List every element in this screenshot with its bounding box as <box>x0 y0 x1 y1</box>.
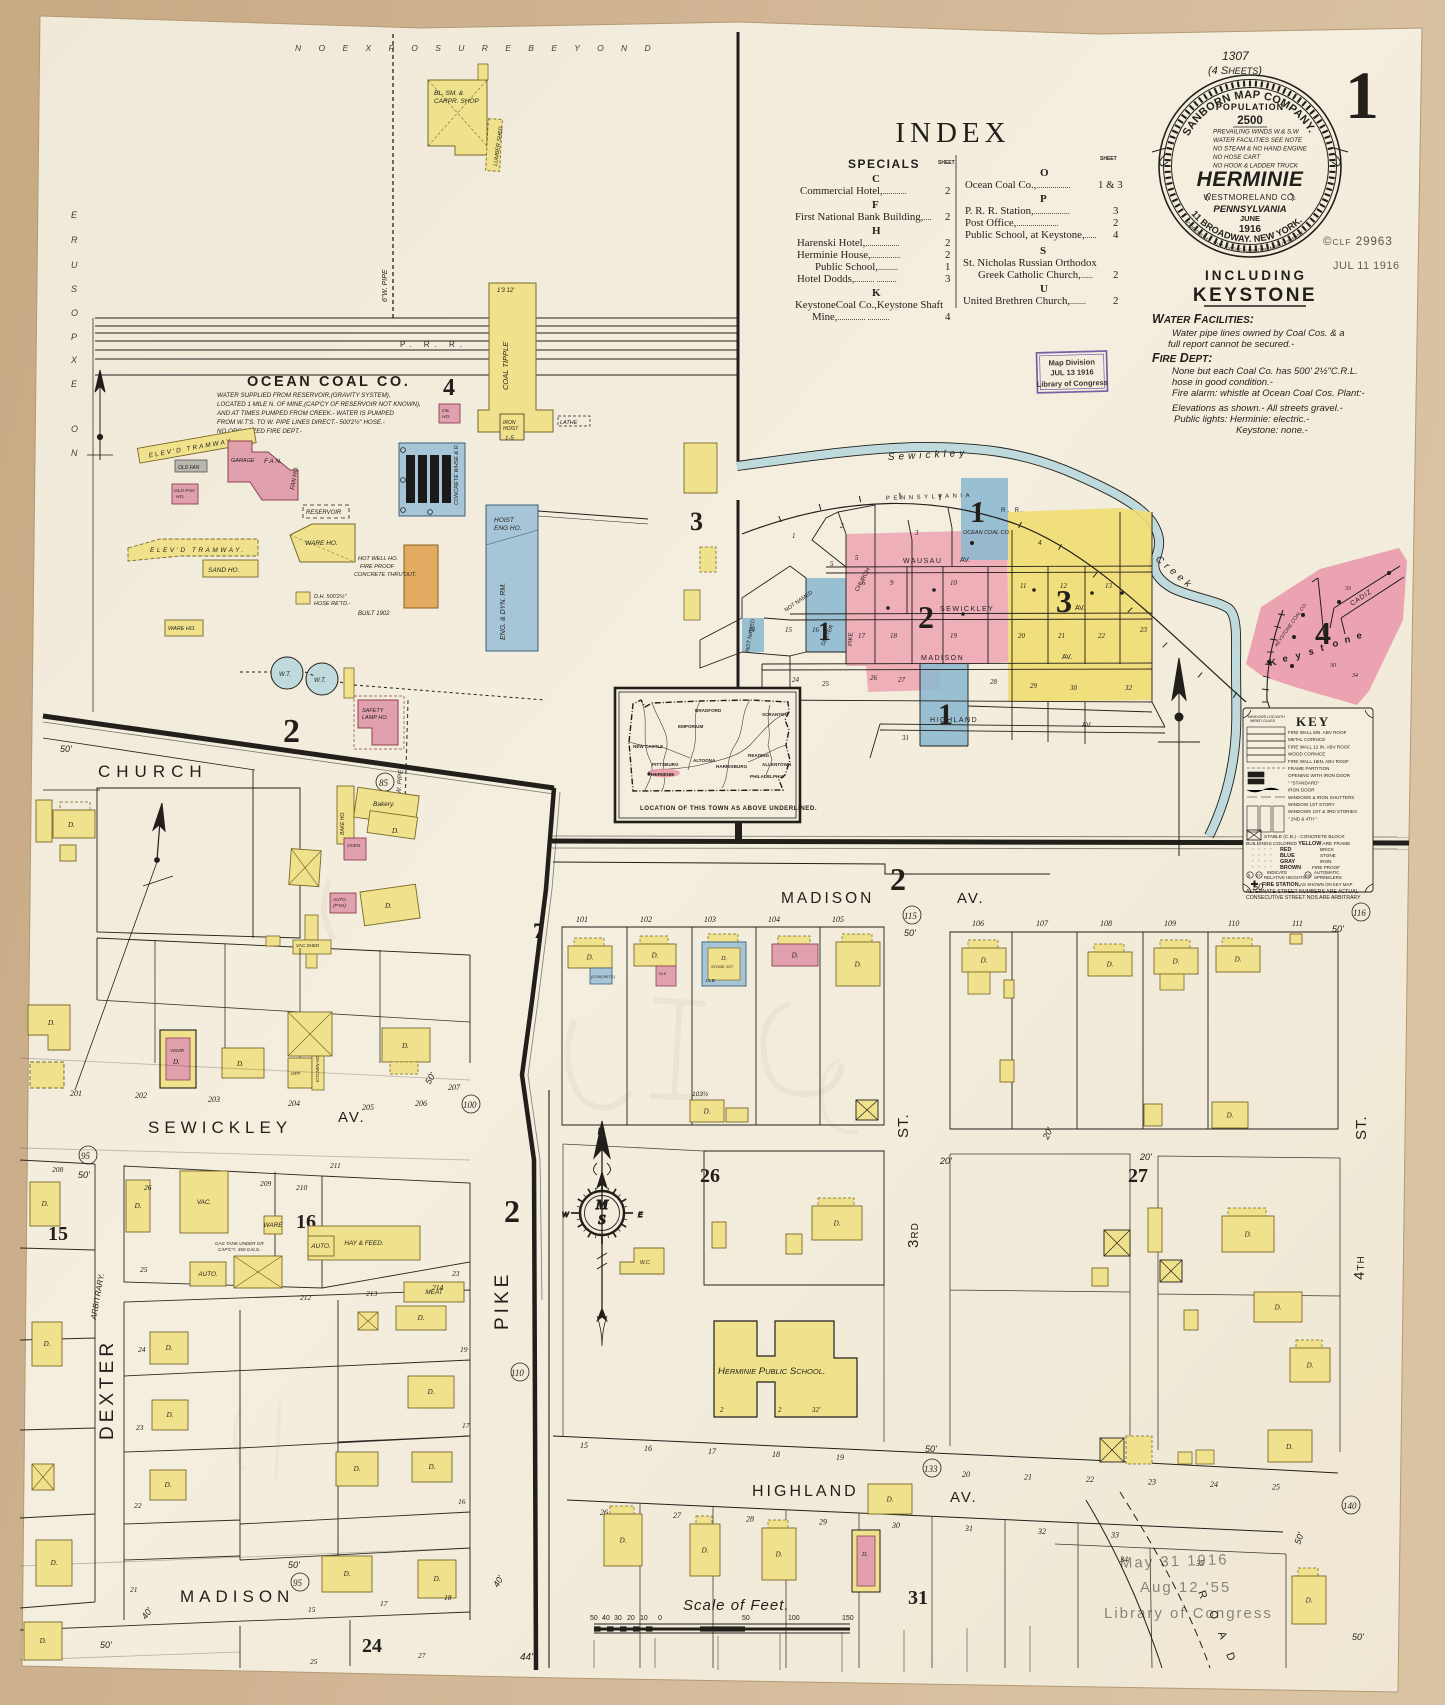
svg-text:HERMINIE PUBLIC SCHOOL.: HERMINIE PUBLIC SCHOOL. <box>718 1366 826 1377</box>
svg-text:WOOD CORNICE: WOOD CORNICE <box>1288 752 1325 757</box>
svg-text:READING: READING <box>748 753 770 758</box>
svg-text:13: 13 <box>1105 582 1113 590</box>
svg-text:25: 25 <box>140 1265 148 1274</box>
svg-text:15: 15 <box>580 1441 588 1450</box>
svg-text:D.: D. <box>236 1060 244 1068</box>
svg-text:INCLUDING: INCLUDING <box>1205 268 1307 283</box>
svg-text:OCEAN COAL CO.: OCEAN COAL CO. <box>963 530 1010 536</box>
svg-text:10: 10 <box>640 1615 648 1622</box>
svg-text:WATER SUPPLIED FROM RESERVOIR,: WATER SUPPLIED FROM RESERVOIR,(GRAVITY S… <box>217 392 391 399</box>
svg-text:RESERVOIR: RESERVOIR <box>306 510 342 516</box>
svg-text:D.: D. <box>980 957 988 965</box>
svg-text:133: 133 <box>924 1464 938 1474</box>
svg-text:16: 16 <box>812 626 820 634</box>
svg-text:100: 100 <box>788 1615 800 1622</box>
svg-text:4: 4 <box>1113 229 1119 241</box>
svg-text:POPULATION: POPULATION <box>1216 102 1284 112</box>
svg-text:C: C <box>872 173 880 185</box>
svg-text:WINDOW 1ST STORY: WINDOW 1ST STORY <box>1288 802 1335 807</box>
svg-text:D.: D. <box>41 1200 49 1208</box>
svg-text:Post Office,..................: Post Office,..................... <box>965 217 1058 229</box>
svg-text:VAC.: VAC. <box>197 1199 212 1206</box>
svg-text:H: H <box>872 225 881 237</box>
svg-text:HOIST: HOIST <box>494 517 515 524</box>
svg-text:110: 110 <box>511 1368 524 1378</box>
svg-text:24: 24 <box>1210 1480 1218 1489</box>
svg-text:109: 109 <box>1164 919 1176 928</box>
svg-text:N: N <box>598 1127 604 1136</box>
svg-text:Aug 12 '55: Aug 12 '55 <box>1140 1579 1231 1596</box>
svg-text:PIKE: PIKE <box>848 632 854 646</box>
svg-text:P. R. R.: P. R. R. <box>400 340 467 349</box>
svg-text:4: 4 <box>1038 539 1042 547</box>
svg-text:AV.: AV. <box>960 557 970 564</box>
svg-text:AUTO.: AUTO. <box>197 1271 217 1278</box>
svg-text:101: 101 <box>576 915 588 924</box>
svg-text:NEW CASTLE: NEW CASTLE <box>633 744 663 749</box>
svg-text:21: 21 <box>1024 1473 1032 1482</box>
svg-text:27: 27 <box>418 1651 426 1660</box>
svg-text:201: 201 <box>70 1089 82 1098</box>
svg-text:1: 1 <box>945 261 950 273</box>
svg-text:S: S <box>1040 245 1046 257</box>
svg-text:16: 16 <box>644 1444 652 1453</box>
svg-text:50': 50' <box>1352 1632 1364 1642</box>
svg-text:Keystone: none.-: Keystone: none.- <box>1236 425 1308 436</box>
svg-text:30: 30 <box>1069 684 1078 692</box>
svg-text:" "STANDARD": " "STANDARD" <box>1288 780 1319 785</box>
svg-text:14: 14 <box>748 626 756 634</box>
svg-text:PITTSBURG: PITTSBURG <box>652 762 679 767</box>
svg-text:WATER FACILITIES:: WATER FACILITIES: <box>1152 312 1254 326</box>
svg-text:D.: D. <box>165 1344 173 1352</box>
svg-text:Library of Congress: Library of Congress <box>1037 378 1108 389</box>
svg-text:23: 23 <box>452 1269 460 1278</box>
svg-text:100: 100 <box>463 1100 477 1110</box>
svg-text:D.: D. <box>586 954 594 962</box>
svg-text:D.: D. <box>43 1340 51 1348</box>
svg-text:10: 10 <box>950 579 958 587</box>
svg-text:full report cannot be secured.: full report cannot be secured.- <box>1168 339 1294 350</box>
svg-text:United Brethren Church,.......: United Brethren Church,........ <box>963 295 1086 307</box>
svg-text:34: 34 <box>1351 672 1358 679</box>
svg-text:D.: D. <box>833 1220 841 1228</box>
svg-text:7: 7 <box>533 918 544 943</box>
svg-text:2500: 2500 <box>1237 115 1263 127</box>
svg-text:CONCRETE WHSE & R.: CONCRETE WHSE & R. <box>454 444 460 505</box>
svg-text:PREVAILING WINDS W.& S.W: PREVAILING WINDS W.& S.W <box>1213 129 1300 136</box>
svg-text:ELEV'D TRAMWAY.: ELEV'D TRAMWAY. <box>150 547 246 554</box>
svg-text:GAS TANK UNDER GR.: GAS TANK UNDER GR. <box>215 1241 265 1246</box>
svg-text:STONE 1ST: STONE 1ST <box>711 964 734 969</box>
svg-text:2: 2 <box>890 861 906 897</box>
svg-text:©CLF 29963: ©CLF 29963 <box>1323 236 1393 248</box>
svg-text:D.: D. <box>1172 958 1180 966</box>
svg-text:LOCATED 1 MILE N. OF MINE,(CAP: LOCATED 1 MILE N. OF MINE,(CAP'CY OF RES… <box>217 401 421 408</box>
svg-text:2: 2 <box>945 237 950 249</box>
svg-text:K: K <box>872 287 881 299</box>
svg-text:28: 28 <box>746 1514 754 1523</box>
svg-text:GARAGE: GARAGE <box>231 458 255 464</box>
svg-text:20: 20 <box>962 1470 970 1479</box>
svg-text:CARPR. SHOP: CARPR. SHOP <box>434 98 479 105</box>
svg-text:1: 1 <box>1345 57 1379 133</box>
svg-text:WAUSAU: WAUSAU <box>903 558 942 565</box>
svg-text:F A N.: F A N. <box>264 458 282 465</box>
svg-text:ST.: ST. <box>895 1113 912 1138</box>
svg-text:CONSECUTIVE STREET NOS ARE ARB: CONSECUTIVE STREET NOS ARE ARBITRARY <box>1246 895 1361 901</box>
svg-text:Water pipe lines owned by Coal: Water pipe lines owned by Coal Cos. & a <box>1172 328 1345 339</box>
svg-text:Public lights: Herminie: elect: Public lights: Herminie: electric.- <box>1174 414 1309 425</box>
svg-text:44': 44' <box>520 1652 534 1663</box>
svg-text:ALLENTOWN: ALLENTOWN <box>762 762 792 767</box>
svg-text:ENG HO.: ENG HO. <box>494 525 522 532</box>
svg-text:25: 25 <box>1272 1483 1280 1492</box>
svg-text:E: E <box>71 210 78 220</box>
svg-text:AS: AS <box>1305 873 1311 878</box>
svg-text:MADISON: MADISON <box>781 890 874 907</box>
svg-text:HERMINIE: HERMINIE <box>651 772 675 778</box>
svg-text:P: P <box>1040 193 1047 205</box>
svg-text:18: 18 <box>444 1593 452 1602</box>
svg-text:2: 2 <box>778 1406 782 1414</box>
svg-text:3: 3 <box>914 529 919 537</box>
svg-text:17: 17 <box>462 1421 470 1430</box>
svg-text:FIRE WALL 12 IN. ABV ROOF: FIRE WALL 12 IN. ABV ROOF <box>1288 744 1350 749</box>
svg-text:212: 212 <box>300 1293 312 1302</box>
svg-text:30: 30 <box>1329 663 1336 669</box>
svg-text:50': 50' <box>78 1170 90 1180</box>
svg-text:110: 110 <box>1228 919 1239 928</box>
svg-text:85: 85 <box>379 778 389 788</box>
svg-text:Elevations as shown.- All stre: Elevations as shown.- All streets gravel… <box>1172 403 1343 414</box>
svg-text:STONE: STONE <box>1320 853 1336 858</box>
svg-text:D.: D. <box>1234 956 1242 964</box>
svg-text:1S.B.: 1S.B. <box>705 978 716 983</box>
svg-text:22: 22 <box>1098 632 1106 640</box>
svg-text:204: 204 <box>288 1099 300 1108</box>
svg-text:95: 95 <box>293 1578 303 1588</box>
svg-text:OLD FAN: OLD FAN <box>174 488 195 494</box>
svg-text:WESTMORELAND CO.: WESTMORELAND CO. <box>1204 193 1297 202</box>
svg-text:1: 1 <box>792 532 796 540</box>
svg-text:40: 40 <box>602 1615 610 1622</box>
svg-text:1: 1 <box>970 496 985 529</box>
svg-text:1307: 1307 <box>1222 49 1250 63</box>
svg-text:50': 50' <box>60 744 72 754</box>
svg-text:Harenski Hotel,...............: Harenski Hotel,................. <box>797 237 899 249</box>
svg-text:26: 26 <box>144 1183 152 1192</box>
svg-text:19: 19 <box>460 1345 468 1354</box>
svg-text:JUL 11 1916: JUL 11 1916 <box>1333 260 1400 272</box>
svg-text:9: 9 <box>890 579 894 587</box>
svg-text:24: 24 <box>362 1635 382 1657</box>
svg-text:BL. SM. &: BL. SM. & <box>434 90 463 97</box>
svg-text:TILE: TILE <box>658 971 667 976</box>
svg-text:SPRINKLERS: SPRINKLERS <box>1314 875 1342 880</box>
svg-text:WINDOWS 1ST & 3RD STORIES: WINDOWS 1ST & 3RD STORIES <box>1288 809 1357 814</box>
svg-text:28: 28 <box>990 678 998 686</box>
svg-text:209: 209 <box>260 1179 272 1188</box>
svg-text:HOIST: HOIST <box>503 426 519 432</box>
svg-text:IRON: IRON <box>1320 859 1331 864</box>
svg-text:24: 24 <box>792 676 800 684</box>
svg-text:206: 206 <box>415 1099 427 1108</box>
svg-text:SAND HO.: SAND HO. <box>208 567 240 574</box>
svg-text:NO HOSE CART: NO HOSE CART <box>1213 154 1261 161</box>
svg-text:METAL CORNICE: METAL CORNICE <box>1288 737 1325 742</box>
svg-text:1: 1 <box>818 617 831 646</box>
svg-text:211: 211 <box>330 1161 341 1170</box>
svg-text:17: 17 <box>858 632 866 640</box>
svg-text:Scale of Feet.: Scale of Feet. <box>683 1597 790 1614</box>
svg-text:SCRANTON: SCRANTON <box>762 712 789 717</box>
svg-text:25: 25 <box>310 1657 318 1666</box>
svg-text:D.: D. <box>166 1411 174 1419</box>
svg-text:HAY & FEED.: HAY & FEED. <box>344 1240 383 1247</box>
svg-text:RELATIVE HEIGHTS: RELATIVE HEIGHTS <box>1264 875 1306 880</box>
svg-text:32: 32 <box>1037 1527 1046 1536</box>
svg-text:6"W. PIPE: 6"W. PIPE <box>382 269 389 302</box>
svg-text:50: 50 <box>1253 882 1263 892</box>
svg-text:AV.: AV. <box>1075 605 1085 612</box>
svg-text:hose in good condition.-: hose in good condition.- <box>1172 377 1273 388</box>
svg-text:KEYSTONE: KEYSTONE <box>1193 285 1317 306</box>
svg-text:KeystoneCoal Co.,Keystone Shaf: KeystoneCoal Co.,Keystone Shaft <box>795 299 943 311</box>
svg-text:N O E X P O S U R E B E Y: N O E X P O S U R E B E Y O N D <box>295 43 658 53</box>
svg-text:R: R <box>71 235 78 245</box>
svg-text:BRICK: BRICK <box>1320 847 1335 852</box>
svg-text:150: 150 <box>842 1615 854 1622</box>
svg-text:MADISON: MADISON <box>921 655 964 662</box>
svg-text:22: 22 <box>134 1501 142 1510</box>
svg-text:(4 SHEETS): (4 SHEETS) <box>1208 65 1262 77</box>
svg-text:AV.: AV. <box>957 890 985 907</box>
svg-text:24: 24 <box>138 1345 146 1354</box>
svg-text:W.C.: W.C. <box>640 1260 651 1266</box>
svg-text:LATHE: LATHE <box>560 420 578 426</box>
svg-text:D.: D. <box>703 1108 711 1116</box>
svg-text:SPECIALS: SPECIALS <box>848 157 920 171</box>
svg-text:SHEET: SHEET <box>1100 156 1117 162</box>
svg-text:D.: D. <box>775 1551 783 1559</box>
svg-text:HARRISBURG: HARRISBURG <box>716 764 748 769</box>
svg-text:4: 4 <box>945 311 951 323</box>
svg-text:2: 2 <box>945 211 950 223</box>
svg-text:2: 2 <box>1113 269 1118 281</box>
svg-text:106: 106 <box>972 919 984 928</box>
svg-text:31: 31 <box>901 734 909 742</box>
svg-text:O: O <box>71 424 78 434</box>
svg-text:2: 2 <box>504 1193 520 1229</box>
svg-text:27: 27 <box>1256 873 1261 878</box>
svg-text:5: 5 <box>830 560 834 568</box>
svg-text:Bakery.: Bakery. <box>373 801 395 808</box>
svg-text:3: 3 <box>1113 205 1118 217</box>
svg-text:18: 18 <box>890 632 898 640</box>
svg-text:COAL TIPPLE: COAL TIPPLE <box>501 341 510 390</box>
svg-text:IRON DOOR: IRON DOOR <box>1288 788 1315 793</box>
svg-text:0: 0 <box>658 1615 662 1622</box>
svg-text:5: 5 <box>855 554 859 562</box>
svg-text:" 2ND & 4TH ": " 2ND & 4TH " <box>1288 816 1318 821</box>
svg-text:27: 27 <box>673 1511 682 1520</box>
svg-text:D.: D. <box>67 821 75 829</box>
svg-text:D.: D. <box>428 1463 436 1471</box>
svg-text:N: N <box>71 448 78 458</box>
svg-text:St. Nicholas Russian Orthodox: St. Nicholas Russian Orthodox <box>963 257 1097 269</box>
svg-text:FIRE PROOF: FIRE PROOF <box>360 564 395 570</box>
svg-text:HOSE RE'TD.-: HOSE RE'TD.- <box>314 601 351 607</box>
svg-text:E: E <box>71 379 78 389</box>
svg-text:Commercial Hotel,............: Commercial Hotel,............ <box>800 185 907 197</box>
svg-text:FROM W.T'S. TO W. PIPE LINES D: FROM W.T'S. TO W. PIPE LINES DIRECT.- 50… <box>217 419 385 426</box>
svg-text:D.: D. <box>391 827 399 835</box>
svg-text:3: 3 <box>690 507 703 536</box>
svg-text:23: 23 <box>1140 626 1148 634</box>
svg-text:OPENING WITH IRON DOOR: OPENING WITH IRON DOOR <box>1288 773 1351 778</box>
svg-text:31: 31 <box>908 1587 928 1609</box>
svg-text:214: 214 <box>432 1283 444 1292</box>
svg-text:OLD FAN: OLD FAN <box>178 465 200 471</box>
svg-text:32': 32' <box>811 1406 821 1414</box>
svg-text:6: 6 <box>862 579 866 587</box>
svg-text:102: 102 <box>640 915 652 924</box>
svg-text:Fire alarm: whistle at Ocean C: Fire alarm: whistle at Ocean Coal Cos. P… <box>1172 388 1365 399</box>
svg-text:LAMP HO.: LAMP HO. <box>362 715 388 721</box>
svg-text:KITCHEN HO.: KITCHEN HO. <box>315 1055 320 1082</box>
svg-text:S: S <box>71 284 77 294</box>
svg-text:D.: D. <box>854 961 862 969</box>
svg-text:21: 21 <box>130 1585 138 1594</box>
svg-text:2: 2 <box>945 249 950 261</box>
svg-text:WIRED GLASS: WIRED GLASS <box>1250 719 1276 723</box>
svg-text:CAP'C'Y. 350 GALS.-: CAP'C'Y. 350 GALS.- <box>218 1247 262 1252</box>
svg-text:W.T.: W.T. <box>314 678 326 684</box>
svg-text:2: 2 <box>283 713 300 750</box>
svg-text:D.: D. <box>164 1481 172 1489</box>
svg-text:KEY: KEY <box>1296 714 1330 729</box>
svg-text:208: 208 <box>52 1165 64 1174</box>
svg-text:X: X <box>70 355 78 365</box>
svg-text:AV.: AV. <box>1082 722 1092 729</box>
svg-text:AS SHOWN ON KEY MAP: AS SHOWN ON KEY MAP <box>1300 882 1352 887</box>
svg-text:116: 116 <box>1353 908 1366 918</box>
svg-text:AV.: AV. <box>1062 654 1072 661</box>
svg-text:D.: D. <box>701 1547 709 1555</box>
svg-text:105: 105 <box>832 915 844 924</box>
svg-text:107: 107 <box>1036 919 1049 928</box>
svg-text:Greek Catholic Church,......: Greek Catholic Church,...... <box>978 269 1093 281</box>
svg-text:O: O <box>1040 167 1049 179</box>
svg-text:Herminie House,...............: Herminie House,............... <box>797 249 901 261</box>
svg-text:213: 213 <box>366 1289 378 1298</box>
svg-text:WATER FACILITIES SEE NOTE: WATER FACILITIES SEE NOTE <box>1213 137 1303 144</box>
svg-text:1916: 1916 <box>1239 224 1262 235</box>
svg-text:2: 2 <box>1113 217 1118 229</box>
svg-text:111: 111 <box>1292 919 1303 928</box>
svg-text:D.: D. <box>134 1202 142 1210</box>
svg-text:E: E <box>638 1212 643 1219</box>
svg-text:OVEN: OVEN <box>347 843 361 848</box>
svg-text:BUILT 1902: BUILT 1902 <box>358 611 390 617</box>
svg-text:Hotel Dodds,.......... .......: Hotel Dodds,.......... .......... <box>797 273 897 285</box>
svg-text:R. R.: R. R. <box>1001 508 1025 514</box>
svg-text:F: F <box>872 199 879 211</box>
svg-text:AND AT TIMES PUMPED FROM CREEK: AND AT TIMES PUMPED FROM CREEK.- WATER I… <box>216 410 394 417</box>
svg-text:31: 31 <box>964 1524 973 1533</box>
svg-text:(P'VA): (P'VA) <box>333 903 346 908</box>
svg-text:Mine,.............. ..........: Mine,.............. ........... <box>812 311 890 323</box>
svg-text:115: 115 <box>904 911 917 921</box>
svg-text:95: 95 <box>81 1151 91 1161</box>
svg-text:P. R. R. Station,.............: P. R. R. Station,.................. <box>965 205 1070 217</box>
svg-text:W.T.: W.T. <box>279 672 291 678</box>
svg-text:WINDOWS & IRON SHUTTERS: WINDOWS & IRON SHUTTERS <box>1288 795 1354 800</box>
svg-text:50': 50' <box>100 1640 112 1650</box>
svg-text:103: 103 <box>704 915 716 924</box>
svg-text:207: 207 <box>448 1083 461 1092</box>
svg-text:50: 50 <box>590 1615 598 1622</box>
svg-text:Public School,..........: Public School,.......... <box>815 261 898 273</box>
svg-text:15: 15 <box>785 626 793 634</box>
svg-text:D.: D. <box>50 1559 58 1567</box>
svg-text:HOT WELL HO.: HOT WELL HO. <box>358 556 398 562</box>
svg-text:JUL 13 1916: JUL 13 1916 <box>1050 367 1093 377</box>
svg-text:29: 29 <box>819 1518 827 1527</box>
svg-text:D.: D. <box>791 952 799 960</box>
svg-text:33: 33 <box>1344 586 1351 592</box>
svg-text:32: 32 <box>1124 684 1133 692</box>
svg-text:50': 50' <box>904 928 916 938</box>
svg-text:15: 15 <box>308 1605 316 1614</box>
svg-text:202: 202 <box>135 1091 147 1100</box>
svg-text:INDEX: INDEX <box>895 117 1010 149</box>
svg-text:D.: D. <box>720 956 727 962</box>
svg-text:D.: D. <box>861 1552 868 1558</box>
svg-text:HO.: HO. <box>176 494 185 500</box>
svg-text:AV.: AV. <box>950 1489 978 1506</box>
svg-text:23: 23 <box>136 1423 144 1432</box>
svg-text:2: 2 <box>918 599 934 635</box>
svg-text:M: M <box>595 1198 609 1213</box>
svg-text:33: 33 <box>1110 1530 1119 1539</box>
svg-text:30: 30 <box>891 1521 900 1530</box>
svg-text:D.: D. <box>353 1465 361 1473</box>
svg-text:STABLE (C.B.) - CONCRETE BLO: STABLE (C.B.) - CONCRETE BLOCK <box>1264 834 1345 840</box>
svg-text:D.: D. <box>1226 1112 1234 1120</box>
svg-text:D.: D. <box>1244 1231 1252 1239</box>
svg-text:50': 50' <box>288 1560 300 1570</box>
svg-text:D.: D. <box>47 1019 55 1027</box>
svg-text:11: 11 <box>1020 582 1026 590</box>
svg-text:203: 203 <box>208 1095 220 1104</box>
svg-text:50: 50 <box>742 1615 750 1622</box>
svg-text:First National Bank Building,.: First National Bank Building,.... <box>795 211 931 223</box>
svg-text:D.: D. <box>401 1042 409 1050</box>
svg-text:1-5: 1-5 <box>505 436 514 442</box>
svg-text:SAFETY: SAFETY <box>362 708 384 714</box>
svg-text:BUILDINGS COLORED YELLOW ARE: BUILDINGS COLORED YELLOW ARE FRAME <box>1246 841 1350 847</box>
svg-text:FIRE STATION,: FIRE STATION, <box>1262 882 1301 888</box>
svg-text:26: 26 <box>700 1165 720 1187</box>
svg-text:VENIR: VENIR <box>170 1048 185 1053</box>
svg-text:27: 27 <box>898 676 906 684</box>
svg-text:D.: D. <box>172 1058 180 1066</box>
svg-text:O: O <box>71 308 78 318</box>
svg-text:FIRE WALL 18IN. ABV ROOF: FIRE WALL 18IN. ABV ROOF <box>1288 759 1349 764</box>
svg-text:19: 19 <box>950 632 958 640</box>
